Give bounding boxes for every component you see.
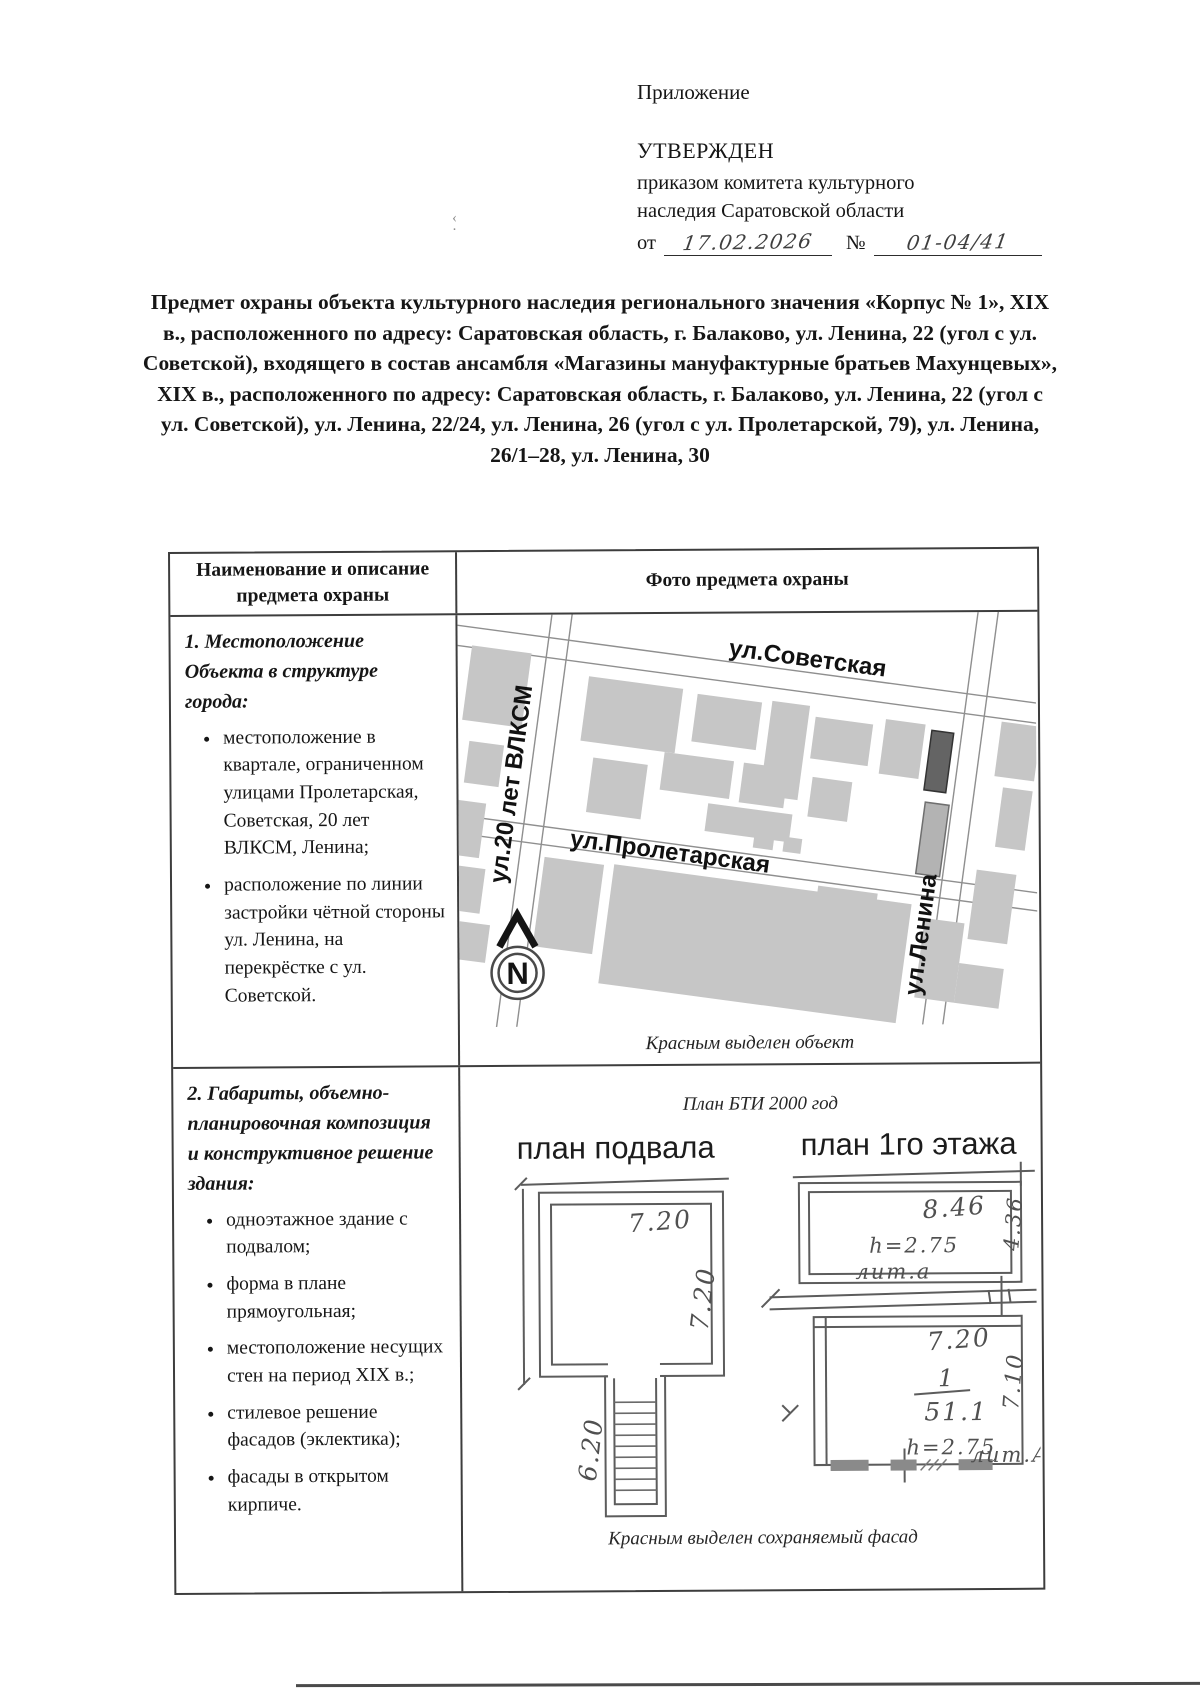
dim-litera-a-width: 8.46 [921,1190,987,1224]
approval-by-line1: приказом комитета культурного [637,172,914,195]
room-area: 51.1 [924,1397,988,1426]
room-number: 1 [938,1364,955,1392]
dimensions-heading: 2. Габариты, объемно-планировочная компо… [187,1077,447,1199]
city-map: ул.Советская ул.Пролетарская ул.20 лет В… [457,611,1038,1027]
location-map-cell: ул.Советская ул.Пролетарская ул.20 лет В… [457,611,1040,1065]
basement-plan-walls [515,1176,731,1516]
floor1-plan-title: план 1го этажа [801,1125,1018,1161]
table-row-location: 1. Местоположение Объекта в структуре го… [170,609,1040,1066]
street-label-sovetskaya: ул.Советская [727,634,888,682]
bti-floor-plans: План БТИ 2000 год план подвала план 1го … [460,1063,1041,1567]
bullet-one-storey: одноэтажное здание с подвалом; [224,1205,447,1262]
scanned-document-page: Приложение УТВЕРЖДЕН приказом комитета к… [0,0,1200,1697]
bullet-quarter-location: местоположение в квартале, ограниченном … [221,723,445,863]
basement-plan-title: план подвала [517,1129,716,1165]
map-caption: Красным выделен объект [460,1030,1040,1056]
protection-subject-table: Наименование и описание предмета охраны … [168,547,1045,1595]
col-header-photo: Фото предмета охраны [457,549,1037,613]
approval-number-handwritten: 01-04/41 [905,229,1011,255]
bti-source-caption: План БТИ 2000 год [682,1093,838,1115]
location-bullet-list: местоположение в квартале, ограниченном … [185,723,446,1010]
scanner-edge-artifact [296,1682,1200,1687]
bti-plans-cell: План БТИ 2000 год план подвала план 1го … [460,1063,1043,1591]
location-heading: 1. Местоположение Объекта в структуре го… [184,625,444,717]
dim-basement-depth: 7.20 [685,1265,721,1332]
annex-label: Приложение [637,80,750,105]
bullet-rect-plan: форма в плане прямоугольная; [224,1269,447,1326]
col-header-description: Наименование и описание предмета охраны [170,552,457,614]
dim-basement-width: 7.20 [627,1204,693,1238]
bullet-building-line: расположение по линии застройки чётной с… [222,870,446,1010]
basement-stairs-treads [614,1402,657,1490]
dimensions-bullet-list: одноэтажное здание с подвалом; форма в п… [188,1205,449,1519]
dim-litera-A-depth: 7.10 [999,1352,1029,1411]
bullet-bearing-walls: местоположение несущих стен на период XI… [225,1334,448,1391]
dim-litera-A-width: 7.20 [926,1322,992,1356]
bullet-open-brick: фасады в открытом кирпиче. [226,1462,449,1519]
from-label: от [637,232,656,254]
scan-noise-artifact: ‹· [452,212,468,238]
location-description-cell: 1. Местоположение Объекта в структуре го… [170,615,460,1067]
north-letter: N [506,955,529,990]
table-header-row: Наименование и описание предмета охраны … [170,549,1037,615]
highlighted-object-building [924,730,954,792]
document-title: Предмет охраны объекта культурного насле… [142,287,1058,470]
approval-date-handwritten: 17.02.2026 [681,229,815,255]
number-sign: № [846,232,866,254]
plans-caption: Красным выделен сохраняемый фасад [607,1526,918,1549]
basement-door-opening [608,1362,660,1378]
dim-litera-a-depth: 4.36 [999,1195,1027,1253]
dimensions-description-cell: 2. Габариты, объемно-планировочная компо… [173,1067,463,1593]
approval-date-line: от17.02.2026№01-04/41 [637,230,1042,256]
dim-litera-a-height: h=2.75 [869,1233,959,1258]
approved-label: УТВЕРЖДЕН [637,138,774,164]
label-litera-a: лит.а [855,1259,931,1283]
label-litera-A: лит.А [970,1442,1041,1466]
bullet-facade-style: стилевое решение фасадов (эклектика); [225,1398,448,1455]
approval-by-line2: наследия Саратовской области [637,200,904,223]
dim-basement-stairs: 6.20 [573,1416,609,1483]
preserved-facade-segments [831,1459,993,1471]
table-row-dimensions: 2. Габариты, объемно-планировочная компо… [173,1061,1043,1592]
